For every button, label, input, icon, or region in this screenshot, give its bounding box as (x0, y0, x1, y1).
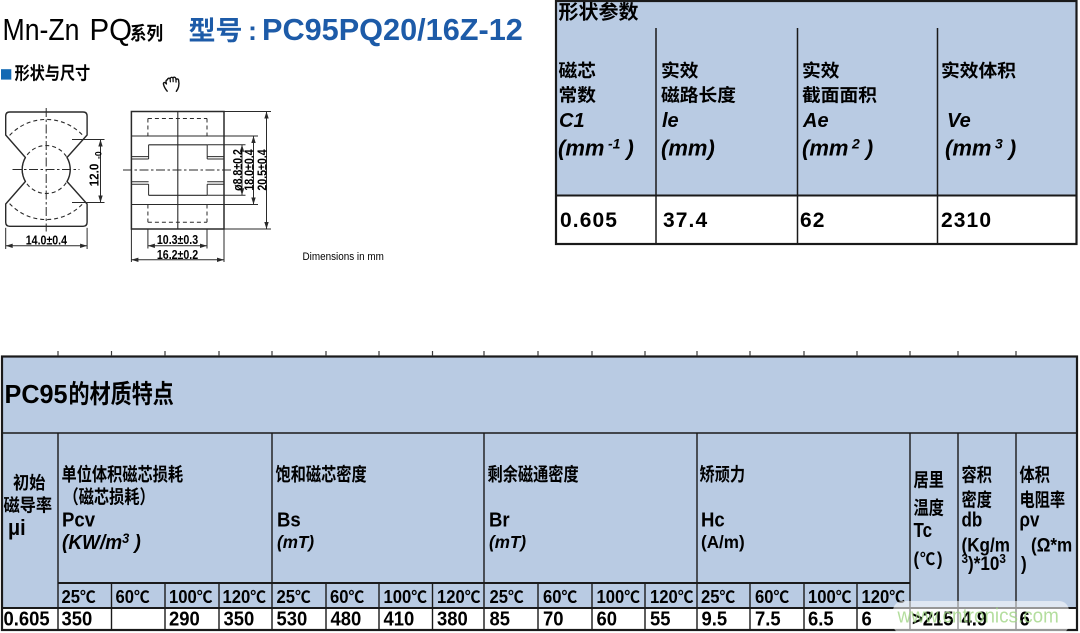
svg-text:120: 120 (437, 586, 465, 607)
svg-text:Ve: Ve (947, 110, 971, 132)
svg-text:Dimensions in mm: Dimensions in mm (303, 252, 385, 264)
svg-text:db: db (962, 508, 983, 531)
svg-text:ρv: ρv (1020, 508, 1041, 531)
svg-text:le: le (662, 110, 679, 132)
svg-text:(KW/m3 ): (KW/m3 ) (62, 531, 141, 554)
svg-text:60: 60 (597, 607, 618, 630)
svg-text:μi: μi (8, 516, 26, 540)
svg-text:14.0±0.4: 14.0±0.4 (26, 234, 68, 248)
svg-text:6.5: 6.5 (808, 607, 834, 630)
svg-text:120: 120 (223, 586, 251, 607)
svg-text:6: 6 (862, 607, 872, 630)
svg-text:120: 120 (650, 586, 678, 607)
svg-text:): ) (1021, 553, 1027, 574)
svg-text:Hc: Hc (701, 510, 725, 532)
svg-text:Mn-Zn: Mn-Zn (3, 13, 80, 47)
svg-text:10.3±0.3: 10.3±0.3 (157, 233, 199, 247)
svg-text:(mT): (mT) (277, 532, 314, 553)
svg-text:16.2±0.2: 16.2±0.2 (157, 248, 198, 262)
svg-text:www.cntronics.com: www.cntronics.com (897, 605, 1059, 628)
svg-text:(mm3 ): (mm3 ) (945, 136, 1016, 161)
svg-text:25: 25 (490, 586, 509, 607)
svg-text:25: 25 (62, 586, 81, 607)
svg-text:100: 100 (597, 586, 625, 607)
svg-text:480: 480 (331, 607, 362, 630)
svg-text:380: 380 (437, 607, 468, 630)
svg-text:2310: 2310 (941, 209, 992, 232)
svg-text:0.605: 0.605 (4, 607, 50, 630)
svg-text:(: ( (914, 548, 920, 569)
svg-text:Br: Br (489, 510, 510, 532)
svg-text:37.4: 37.4 (663, 209, 708, 232)
svg-text:60: 60 (543, 586, 562, 607)
svg-text:12.0: 12.0 (87, 164, 102, 187)
svg-text:3)*103: 3)*103 (962, 551, 1006, 574)
svg-text:20.5±0.4: 20.5±0.4 (256, 149, 270, 191)
svg-text:Bs: Bs (277, 510, 301, 532)
svg-text:70: 70 (543, 607, 564, 630)
svg-text:18.0±0.4: 18.0±0.4 (243, 149, 257, 191)
svg-text:55: 55 (650, 607, 671, 630)
svg-text:PC95PQ20/16Z-12: PC95PQ20/16Z-12 (262, 12, 523, 47)
svg-text:120: 120 (862, 586, 890, 607)
svg-text:25: 25 (277, 586, 296, 607)
svg-text:Tc: Tc (914, 519, 933, 542)
svg-text:Ae: Ae (802, 110, 829, 132)
svg-text:(mm): (mm) (661, 136, 715, 161)
svg-text:): ) (937, 548, 943, 569)
svg-text:290: 290 (169, 607, 200, 630)
svg-text:62: 62 (800, 209, 826, 232)
svg-text:PQ: PQ (90, 13, 133, 47)
svg-text:(mm2 ): (mm2 ) (802, 136, 873, 161)
svg-text:C1: C1 (559, 110, 585, 132)
svg-text:(mT): (mT) (489, 532, 526, 553)
svg-text:60: 60 (755, 586, 774, 607)
svg-text:350: 350 (224, 607, 255, 630)
svg-text:60: 60 (116, 586, 135, 607)
svg-text:60: 60 (330, 586, 349, 607)
svg-text:100: 100 (384, 586, 412, 607)
svg-text:-0: -0 (93, 151, 104, 159)
svg-text:(Ω*m: (Ω*m (1031, 535, 1072, 556)
svg-text:7.5: 7.5 (755, 607, 781, 630)
svg-text:350: 350 (62, 607, 93, 630)
svg-text:410: 410 (384, 607, 415, 630)
svg-text:9.5: 9.5 (702, 607, 728, 630)
svg-text:(mm-1 ): (mm-1 ) (558, 136, 634, 161)
svg-text:Pcv: Pcv (62, 510, 95, 532)
svg-text:100: 100 (169, 586, 197, 607)
svg-text:100: 100 (808, 586, 836, 607)
svg-text:85: 85 (490, 607, 511, 630)
svg-text::: : (248, 16, 257, 46)
svg-text:530: 530 (277, 607, 308, 630)
svg-text:PC95: PC95 (5, 381, 68, 409)
svg-text:(A/m): (A/m) (701, 532, 745, 553)
svg-text:25: 25 (701, 586, 720, 607)
svg-text:0.605: 0.605 (560, 209, 618, 232)
